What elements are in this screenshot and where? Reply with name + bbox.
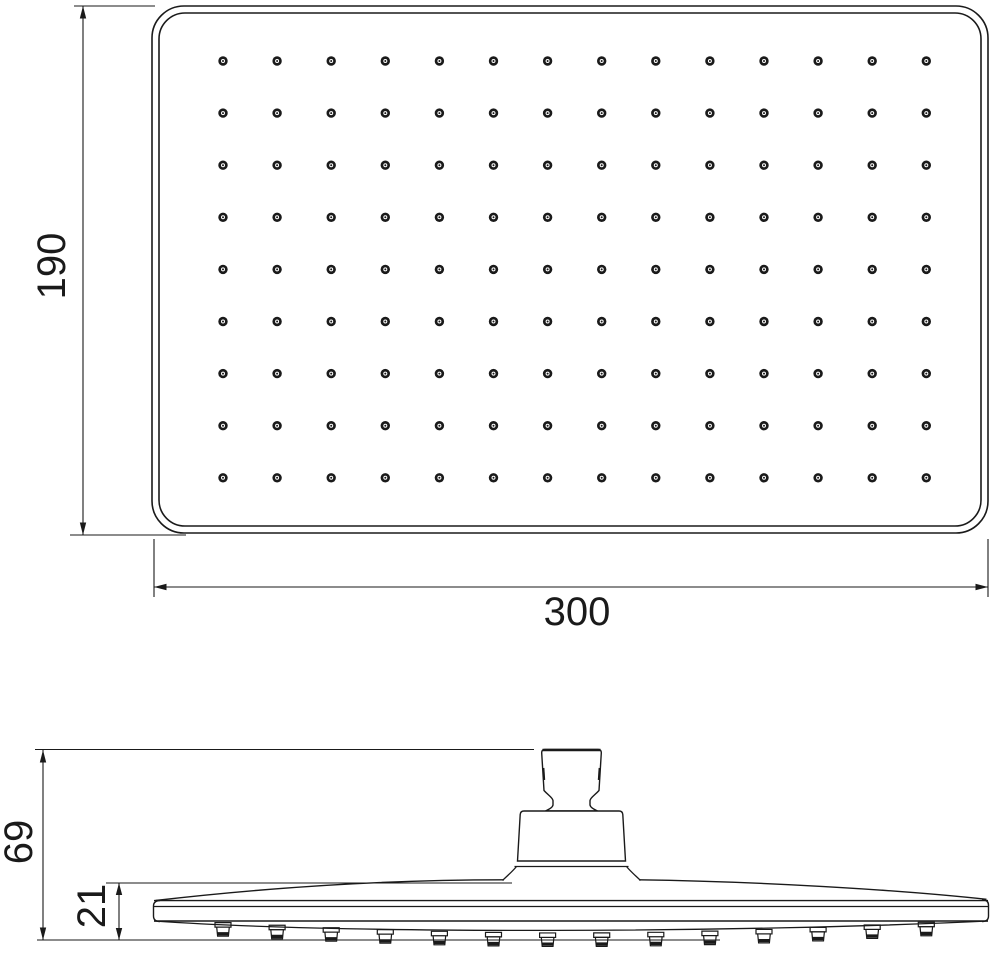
nozzle-hole (922, 473, 931, 482)
nozzle-hole (327, 108, 336, 117)
spray-nozzle (648, 932, 664, 946)
nozzle-hole (543, 265, 552, 274)
nozzle-hole (381, 161, 390, 170)
side-view: 69 21 (0, 750, 989, 947)
nozzle-hole (705, 265, 714, 274)
arrow-right-icon (976, 584, 989, 590)
nozzle-hole (218, 317, 227, 326)
nozzle-hole (651, 421, 660, 430)
nozzle-hole (597, 473, 606, 482)
nozzle-hole (922, 369, 931, 378)
nozzle-hole (272, 369, 281, 378)
spray-nozzle (756, 929, 772, 943)
nozzle-hole (543, 421, 552, 430)
nozzle-hole (868, 108, 877, 117)
nozzle-hole (272, 473, 281, 482)
nozzle-hole (705, 473, 714, 482)
plate-top-dome-right (639, 880, 987, 900)
nozzle-hole-grid (218, 56, 931, 482)
nozzle-hole (705, 317, 714, 326)
nozzle-hole (218, 473, 227, 482)
nozzle-hole (651, 369, 660, 378)
shower-plate-profile (154, 880, 989, 931)
nozzle-hole (759, 473, 768, 482)
nozzle-hole (868, 317, 877, 326)
nozzle-hole (435, 473, 444, 482)
nozzle-hole (651, 56, 660, 65)
spray-nozzle-row (215, 922, 934, 946)
spray-nozzle (377, 930, 393, 944)
nozzle-hole (597, 421, 606, 430)
nozzle-hole (218, 161, 227, 170)
nozzle-hole (435, 265, 444, 274)
nozzle-hole (705, 56, 714, 65)
arrow-up-icon (40, 750, 46, 763)
nozzle-hole (218, 56, 227, 65)
faceplate-inner-outline (159, 13, 981, 526)
nozzle-hole (272, 213, 281, 222)
nozzle-hole (327, 369, 336, 378)
arrow-up-icon (80, 6, 86, 19)
nozzle-hole (813, 265, 822, 274)
plate-left-edge (154, 901, 161, 922)
nozzle-hole (327, 265, 336, 274)
spray-nozzle (702, 931, 718, 945)
nozzle-hole (597, 161, 606, 170)
nozzle-hole (489, 265, 498, 274)
nozzle-hole (543, 161, 552, 170)
spray-nozzle (486, 932, 502, 946)
nozzle-hole (651, 473, 660, 482)
spray-nozzle (810, 927, 826, 941)
arrow-left-icon (154, 584, 167, 590)
nozzle-hole (543, 213, 552, 222)
nozzle-hole (218, 213, 227, 222)
nozzle-hole (272, 317, 281, 326)
nozzle-hole (597, 317, 606, 326)
nozzle-hole (543, 56, 552, 65)
nozzle-hole (381, 213, 390, 222)
connector-fitting (503, 750, 641, 881)
nozzle-hole (543, 369, 552, 378)
nozzle-hole (272, 421, 281, 430)
nozzle-hole (327, 161, 336, 170)
nozzle-hole (759, 317, 768, 326)
arrow-down-icon (80, 523, 86, 536)
connector-collar (518, 811, 626, 861)
arrow-down-icon (116, 928, 122, 940)
nozzle-hole (543, 317, 552, 326)
nozzle-hole (813, 317, 822, 326)
nozzle-hole (435, 213, 444, 222)
nozzle-hole (813, 369, 822, 378)
nozzle-hole (597, 265, 606, 274)
nozzle-hole (489, 213, 498, 222)
nozzle-hole (597, 369, 606, 378)
nozzle-hole (759, 161, 768, 170)
nozzle-hole (868, 473, 877, 482)
plate-right-edge (982, 900, 989, 922)
nozzle-hole (868, 161, 877, 170)
dimension-label-height: 190 (30, 233, 74, 300)
nozzle-hole (327, 421, 336, 430)
nozzle-hole (272, 161, 281, 170)
nozzle-hole (597, 56, 606, 65)
dimension-label-width: 300 (544, 590, 611, 634)
nozzle-hole (381, 56, 390, 65)
nozzle-hole (381, 421, 390, 430)
nozzle-hole (705, 421, 714, 430)
nozzle-hole (327, 213, 336, 222)
nozzle-hole (759, 108, 768, 117)
top-view: 190 300 (30, 6, 988, 634)
collar-skirt-right (627, 867, 641, 881)
nozzle-hole (868, 213, 877, 222)
nozzle-hole (489, 108, 498, 117)
spray-nozzle (431, 931, 447, 945)
nozzle-hole (922, 108, 931, 117)
nozzle-hole (922, 56, 931, 65)
nozzle-hole (597, 108, 606, 117)
nozzle-hole (435, 369, 444, 378)
dimension-label-total-height: 69 (0, 820, 41, 865)
nozzle-hole (651, 161, 660, 170)
nozzle-hole (651, 317, 660, 326)
nozzle-hole (922, 317, 931, 326)
nozzle-hole (543, 473, 552, 482)
nozzle-hole (759, 56, 768, 65)
nozzle-hole (218, 108, 227, 117)
nozzle-hole (759, 265, 768, 274)
inlet-nut (542, 750, 602, 812)
arrow-up-icon (116, 883, 122, 895)
nozzle-hole (597, 213, 606, 222)
nozzle-hole (813, 161, 822, 170)
dimension-label-thickness: 21 (70, 884, 114, 929)
spray-nozzle (323, 928, 339, 942)
nozzle-hole (705, 161, 714, 170)
nozzle-hole (759, 369, 768, 378)
arrow-down-icon (40, 928, 46, 941)
dimension-plate-height: 190 (30, 6, 186, 535)
nozzle-hole (705, 213, 714, 222)
nozzle-hole (218, 265, 227, 274)
nozzle-hole (435, 56, 444, 65)
nozzle-hole (327, 473, 336, 482)
dimension-plate-width: 300 (154, 539, 988, 634)
nozzle-hole (435, 161, 444, 170)
nozzle-hole (381, 265, 390, 274)
nozzle-hole (489, 56, 498, 65)
nozzle-hole (489, 369, 498, 378)
nozzle-hole (813, 421, 822, 430)
nozzle-hole (868, 369, 877, 378)
nut-facet-mark-right (599, 768, 600, 780)
nozzle-hole (218, 421, 227, 430)
nozzle-hole (651, 108, 660, 117)
nozzle-hole (489, 161, 498, 170)
nozzle-hole (813, 473, 822, 482)
nozzle-hole (272, 56, 281, 65)
nut-facet-mark-left (543, 768, 544, 780)
nozzle-hole (327, 56, 336, 65)
nozzle-hole (868, 265, 877, 274)
shower-head-technical-drawing: 190 300 (0, 0, 994, 956)
nozzle-hole (489, 421, 498, 430)
nozzle-hole (651, 213, 660, 222)
nozzle-hole (381, 473, 390, 482)
nozzle-hole (813, 213, 822, 222)
nozzle-hole (327, 317, 336, 326)
spray-nozzle (864, 925, 880, 939)
nozzle-hole (435, 317, 444, 326)
nozzle-hole (435, 421, 444, 430)
nozzle-hole (381, 108, 390, 117)
nozzle-hole (922, 265, 931, 274)
nozzle-hole (759, 421, 768, 430)
nozzle-hole (489, 317, 498, 326)
nozzle-hole (218, 369, 227, 378)
nozzle-hole (813, 56, 822, 65)
nozzle-hole (489, 473, 498, 482)
nozzle-hole (868, 421, 877, 430)
nozzle-hole (272, 265, 281, 274)
nozzle-hole (813, 108, 822, 117)
drawing-sheet: 190 300 (0, 0, 994, 956)
nozzle-hole (651, 265, 660, 274)
nozzle-hole (705, 108, 714, 117)
nozzle-hole (435, 108, 444, 117)
nozzle-hole (922, 161, 931, 170)
nozzle-hole (922, 213, 931, 222)
nozzle-hole (272, 108, 281, 117)
nozzle-hole (759, 213, 768, 222)
nozzle-hole (922, 421, 931, 430)
nozzle-hole (868, 56, 877, 65)
nozzle-hole (381, 317, 390, 326)
nozzle-hole (381, 369, 390, 378)
nozzle-hole (543, 108, 552, 117)
nozzle-hole (705, 369, 714, 378)
collar-skirt-left (503, 867, 517, 881)
